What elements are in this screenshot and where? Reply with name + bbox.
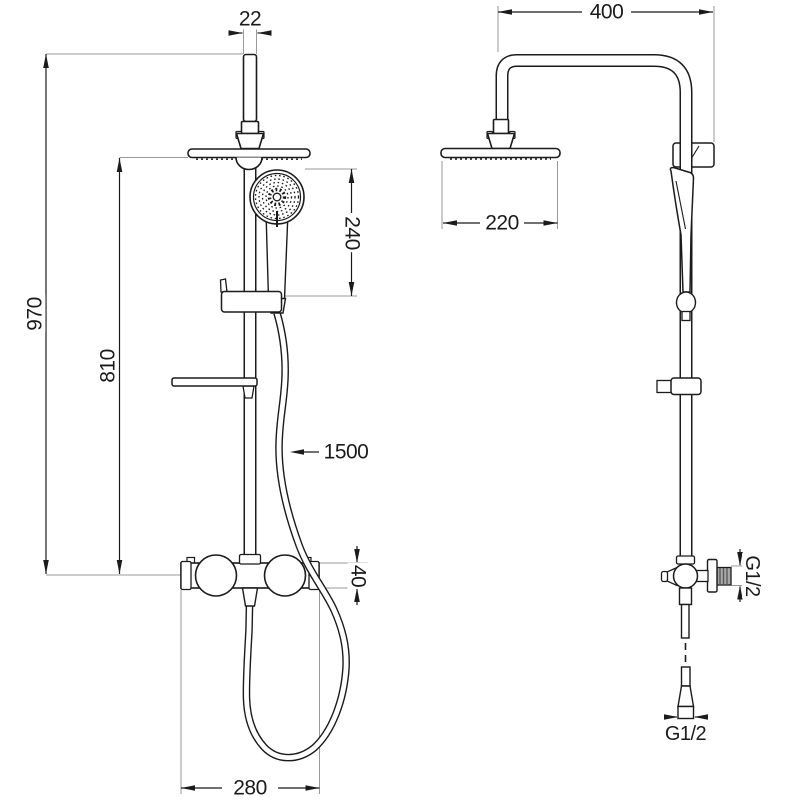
shower-hose <box>246 313 346 758</box>
thermostat-valve-side <box>662 556 732 638</box>
dim-label-total-height: 970 <box>25 295 46 333</box>
dim-label-hose-length: 1500 <box>322 442 371 463</box>
dim-label-pipe-diameter: 22 <box>237 9 263 30</box>
front-view <box>172 55 346 758</box>
flow-knob <box>265 555 306 596</box>
dimension-lines <box>46 12 740 788</box>
dimension-arrowheads <box>43 9 743 791</box>
extension-lines <box>46 6 748 794</box>
dim-label-handshower-length: 240 <box>341 214 362 252</box>
soap-shelf <box>172 378 257 398</box>
inlet-flange <box>708 560 718 593</box>
dim-label-rail-height: 810 <box>98 347 119 385</box>
shelf-mount <box>243 386 254 398</box>
valve-outlet-nut <box>243 588 258 606</box>
valve-body-side <box>674 564 698 588</box>
hose-nut-side <box>677 292 696 313</box>
dim-label-arm-depth: 400 <box>588 1 626 22</box>
temperature-knob <box>196 555 237 596</box>
shower-arm-pipe <box>502 61 686 558</box>
shower-set-drawing <box>0 0 800 800</box>
dim-label-inlet-thread: G1/2 <box>742 553 762 598</box>
dim-label-valve-width: 280 <box>231 778 269 799</box>
dim-label-hose-thread: G1/2 <box>663 724 708 744</box>
top-pipe <box>236 55 264 149</box>
dim-label-valve-height: 40 <box>347 562 368 588</box>
rain-head-side <box>441 120 560 160</box>
rain-head-front <box>188 149 310 170</box>
side-view <box>441 61 731 719</box>
dim-label-head-diameter: 220 <box>483 213 521 234</box>
hand-shower-front <box>250 170 304 299</box>
rail-bracket-side <box>657 378 701 395</box>
hose-tail-fitting <box>678 643 694 719</box>
ball-joint <box>236 158 262 170</box>
wall-bracket <box>673 143 714 167</box>
technical-drawing-canvas: 22 970 810 240 1500 40 280 400 220 G1/2 … <box>0 0 800 800</box>
